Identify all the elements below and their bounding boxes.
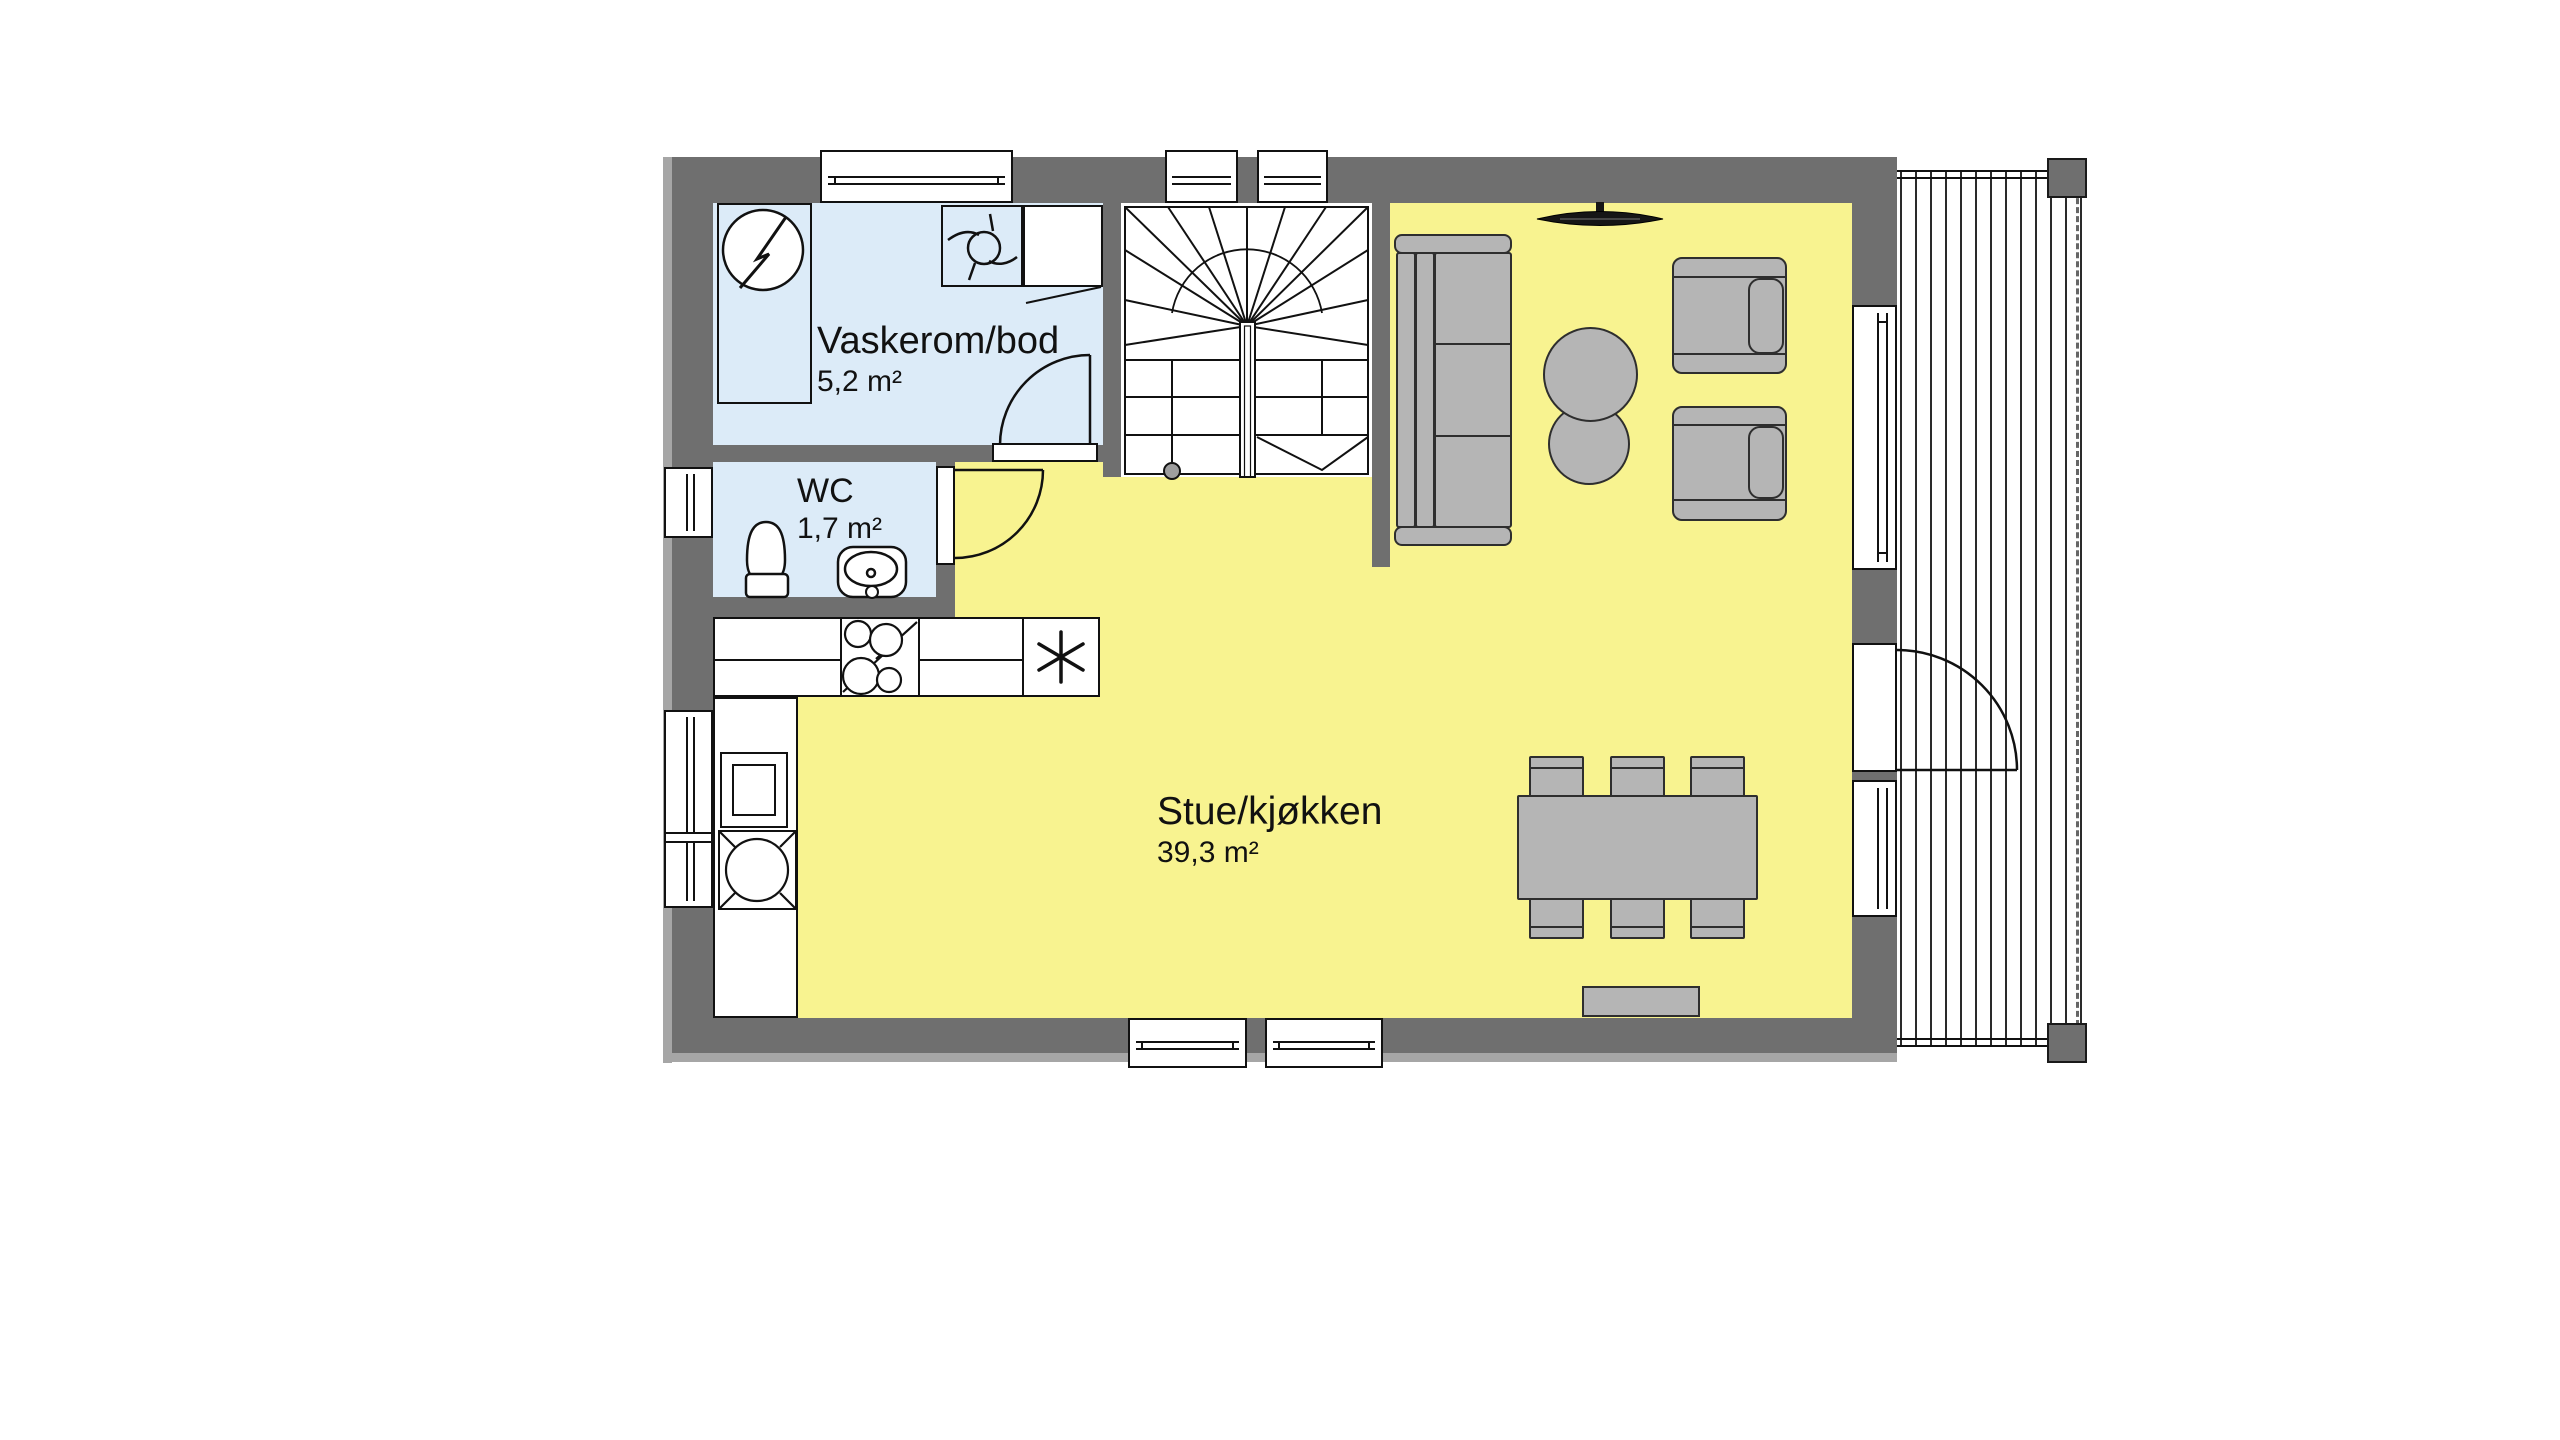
living-kitchen-label: Stue/kjøkken 39,3 m² [1157, 790, 1382, 869]
sofa-seat-divider-1 [1436, 343, 1510, 345]
shadow-left [663, 157, 672, 1063]
floor-plan: Vaskerom/bod 5,2 m² WC 1,7 m² Stue/kjøkk… [0, 0, 2560, 1440]
laundry-room-name: Vaskerom/bod [817, 320, 1059, 363]
terrace-post-bottom [2047, 1023, 2087, 1063]
living-kitchen-area: 39,3 m² [1157, 836, 1382, 870]
terrace-deck [1887, 170, 2085, 1047]
wall-stair-west [1103, 203, 1121, 477]
terrace-door-threshold [1852, 643, 1897, 772]
wc-name: WC [797, 472, 882, 510]
dining-chair-top-1 [1529, 756, 1584, 798]
laundry-door-threshold [992, 443, 1098, 462]
window-stair-north-2 [1257, 150, 1328, 203]
laundry-cabinet [1023, 205, 1103, 287]
sofa-back-cushion-2 [1415, 252, 1435, 528]
laundry-room-label: Vaskerom/bod 5,2 m² [817, 320, 1059, 398]
armchair-2-backrest [1748, 426, 1784, 499]
window-living-east-2 [1852, 780, 1897, 917]
armchair-2-armrest-line-bottom [1674, 499, 1785, 501]
freezer [1022, 617, 1100, 697]
dining-chair-top-3 [1690, 756, 1745, 798]
dining-chair-bottom-3 [1690, 897, 1745, 939]
terrace-post-top [2047, 158, 2087, 198]
window-living-south-2 [1265, 1018, 1383, 1068]
window-living-east-1 [1852, 305, 1897, 570]
dining-chair-top-2 [1610, 756, 1665, 798]
laundry-room-area: 5,2 m² [817, 365, 1059, 399]
dining-table [1517, 795, 1758, 900]
armchair-1-backrest [1748, 278, 1784, 354]
window-living-south-1 [1128, 1018, 1247, 1068]
wc-label: WC 1,7 m² [797, 472, 882, 546]
sofa-seat-cushions [1434, 252, 1512, 528]
terrace-edge-dashed-line [2076, 180, 2079, 1035]
wall-right [1852, 157, 1897, 1053]
living-kitchen-name: Stue/kjøkken [1157, 790, 1382, 834]
wc-door-threshold [936, 466, 955, 565]
sofa-seat-divider-2 [1436, 435, 1510, 437]
wall-stair-east [1372, 203, 1390, 567]
cooktop [840, 617, 920, 697]
dining-chair-bottom-2 [1610, 897, 1665, 939]
coffee-table-large [1543, 327, 1638, 422]
corner-appliance [718, 830, 797, 910]
sofa-back-cushion-1 [1396, 252, 1416, 528]
wall-left [672, 157, 713, 1053]
laundry-bench [717, 203, 812, 404]
window-laundry-north [820, 150, 1013, 203]
wc-area: 1,7 m² [797, 512, 882, 546]
staircase-outline [1124, 206, 1369, 475]
sofa-armrest-top [1394, 234, 1512, 254]
sideboard [1582, 986, 1700, 1017]
washing-machine [941, 205, 1023, 287]
window-wc-west [664, 467, 713, 538]
window-kitchen-west [664, 710, 713, 908]
wall-wc-south [713, 597, 955, 617]
sofa-armrest-bottom [1394, 526, 1512, 546]
oven-inner [732, 764, 776, 816]
window-stair-north-1 [1165, 150, 1238, 203]
dining-chair-bottom-1 [1529, 897, 1584, 939]
